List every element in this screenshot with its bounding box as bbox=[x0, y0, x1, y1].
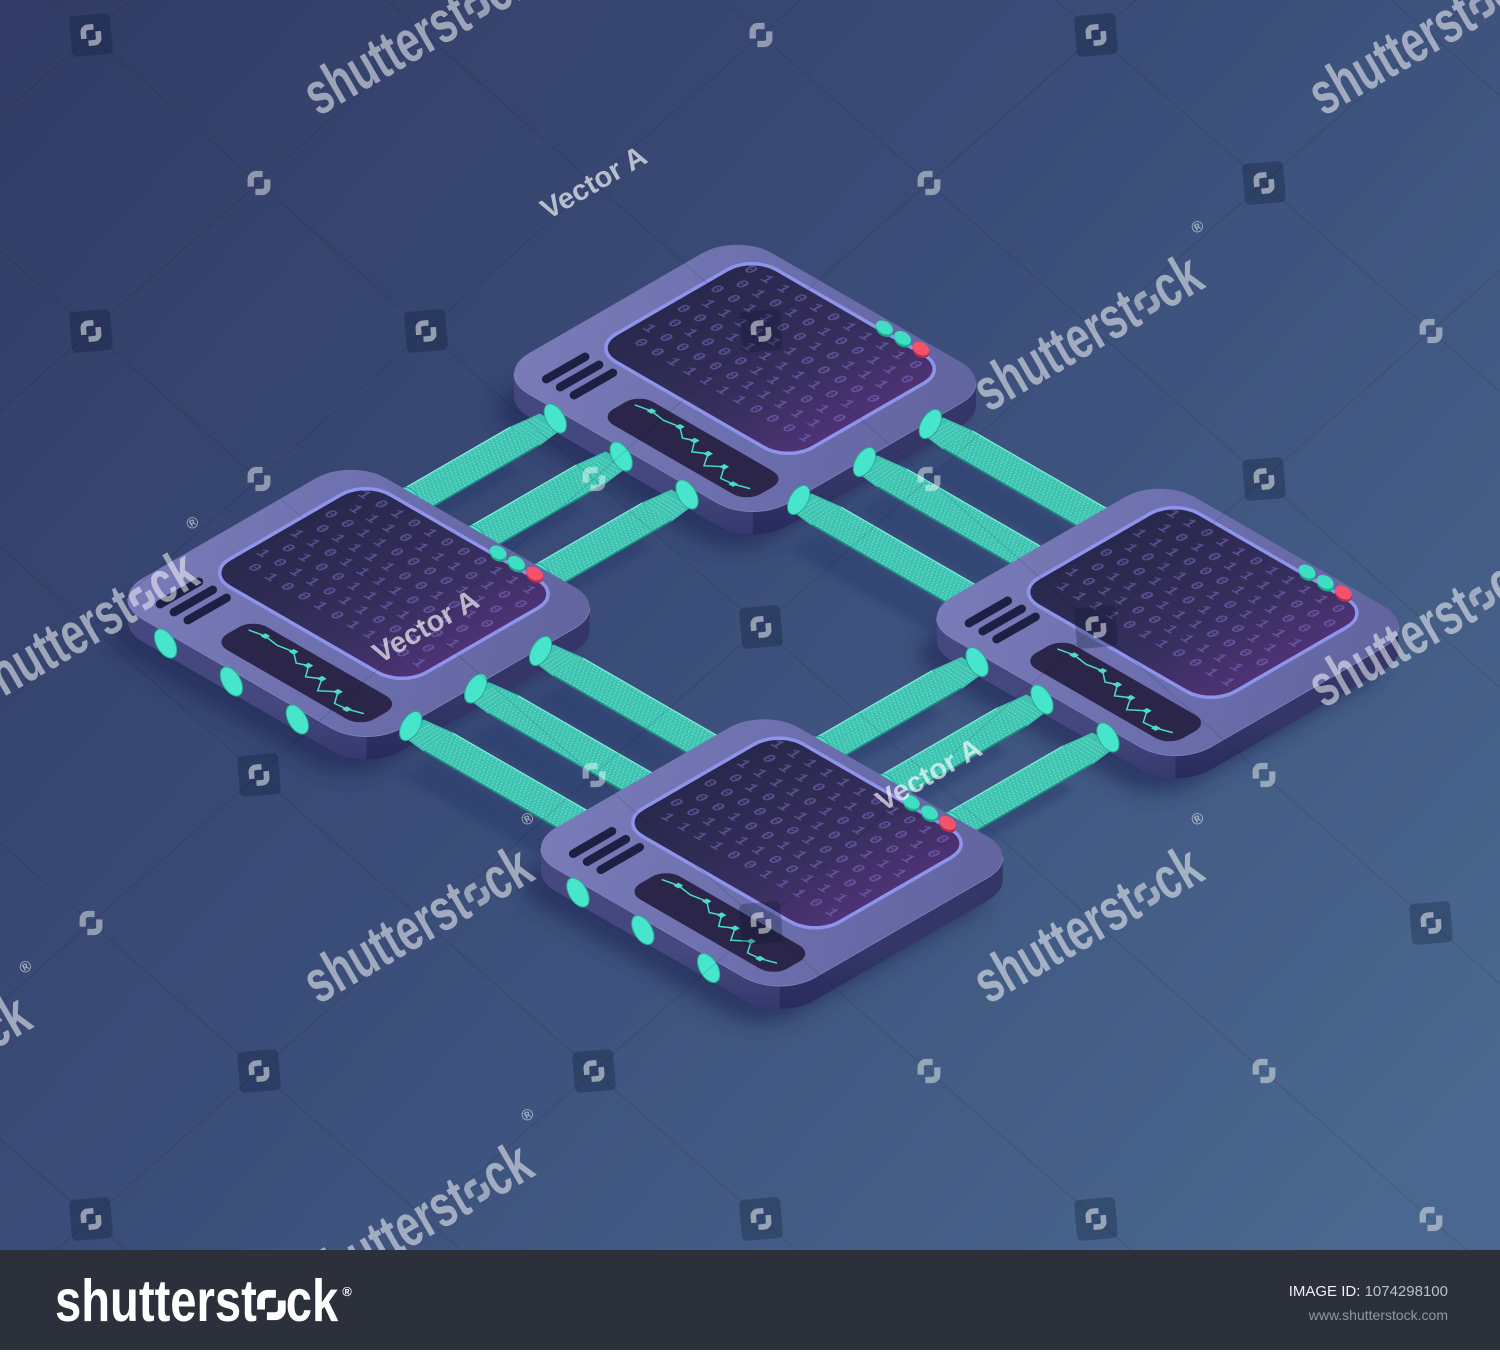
svg-text:IMAGE ID: 1074298100: IMAGE ID: 1074298100 bbox=[1289, 1283, 1448, 1300]
svg-text:www.shutterstock.com: www.shutterstock.com bbox=[1308, 1307, 1448, 1323]
svg-text:ck: ck bbox=[286, 1269, 339, 1334]
svg-text:®: ® bbox=[342, 1284, 352, 1299]
svg-text:shutterst: shutterst bbox=[55, 1269, 257, 1334]
